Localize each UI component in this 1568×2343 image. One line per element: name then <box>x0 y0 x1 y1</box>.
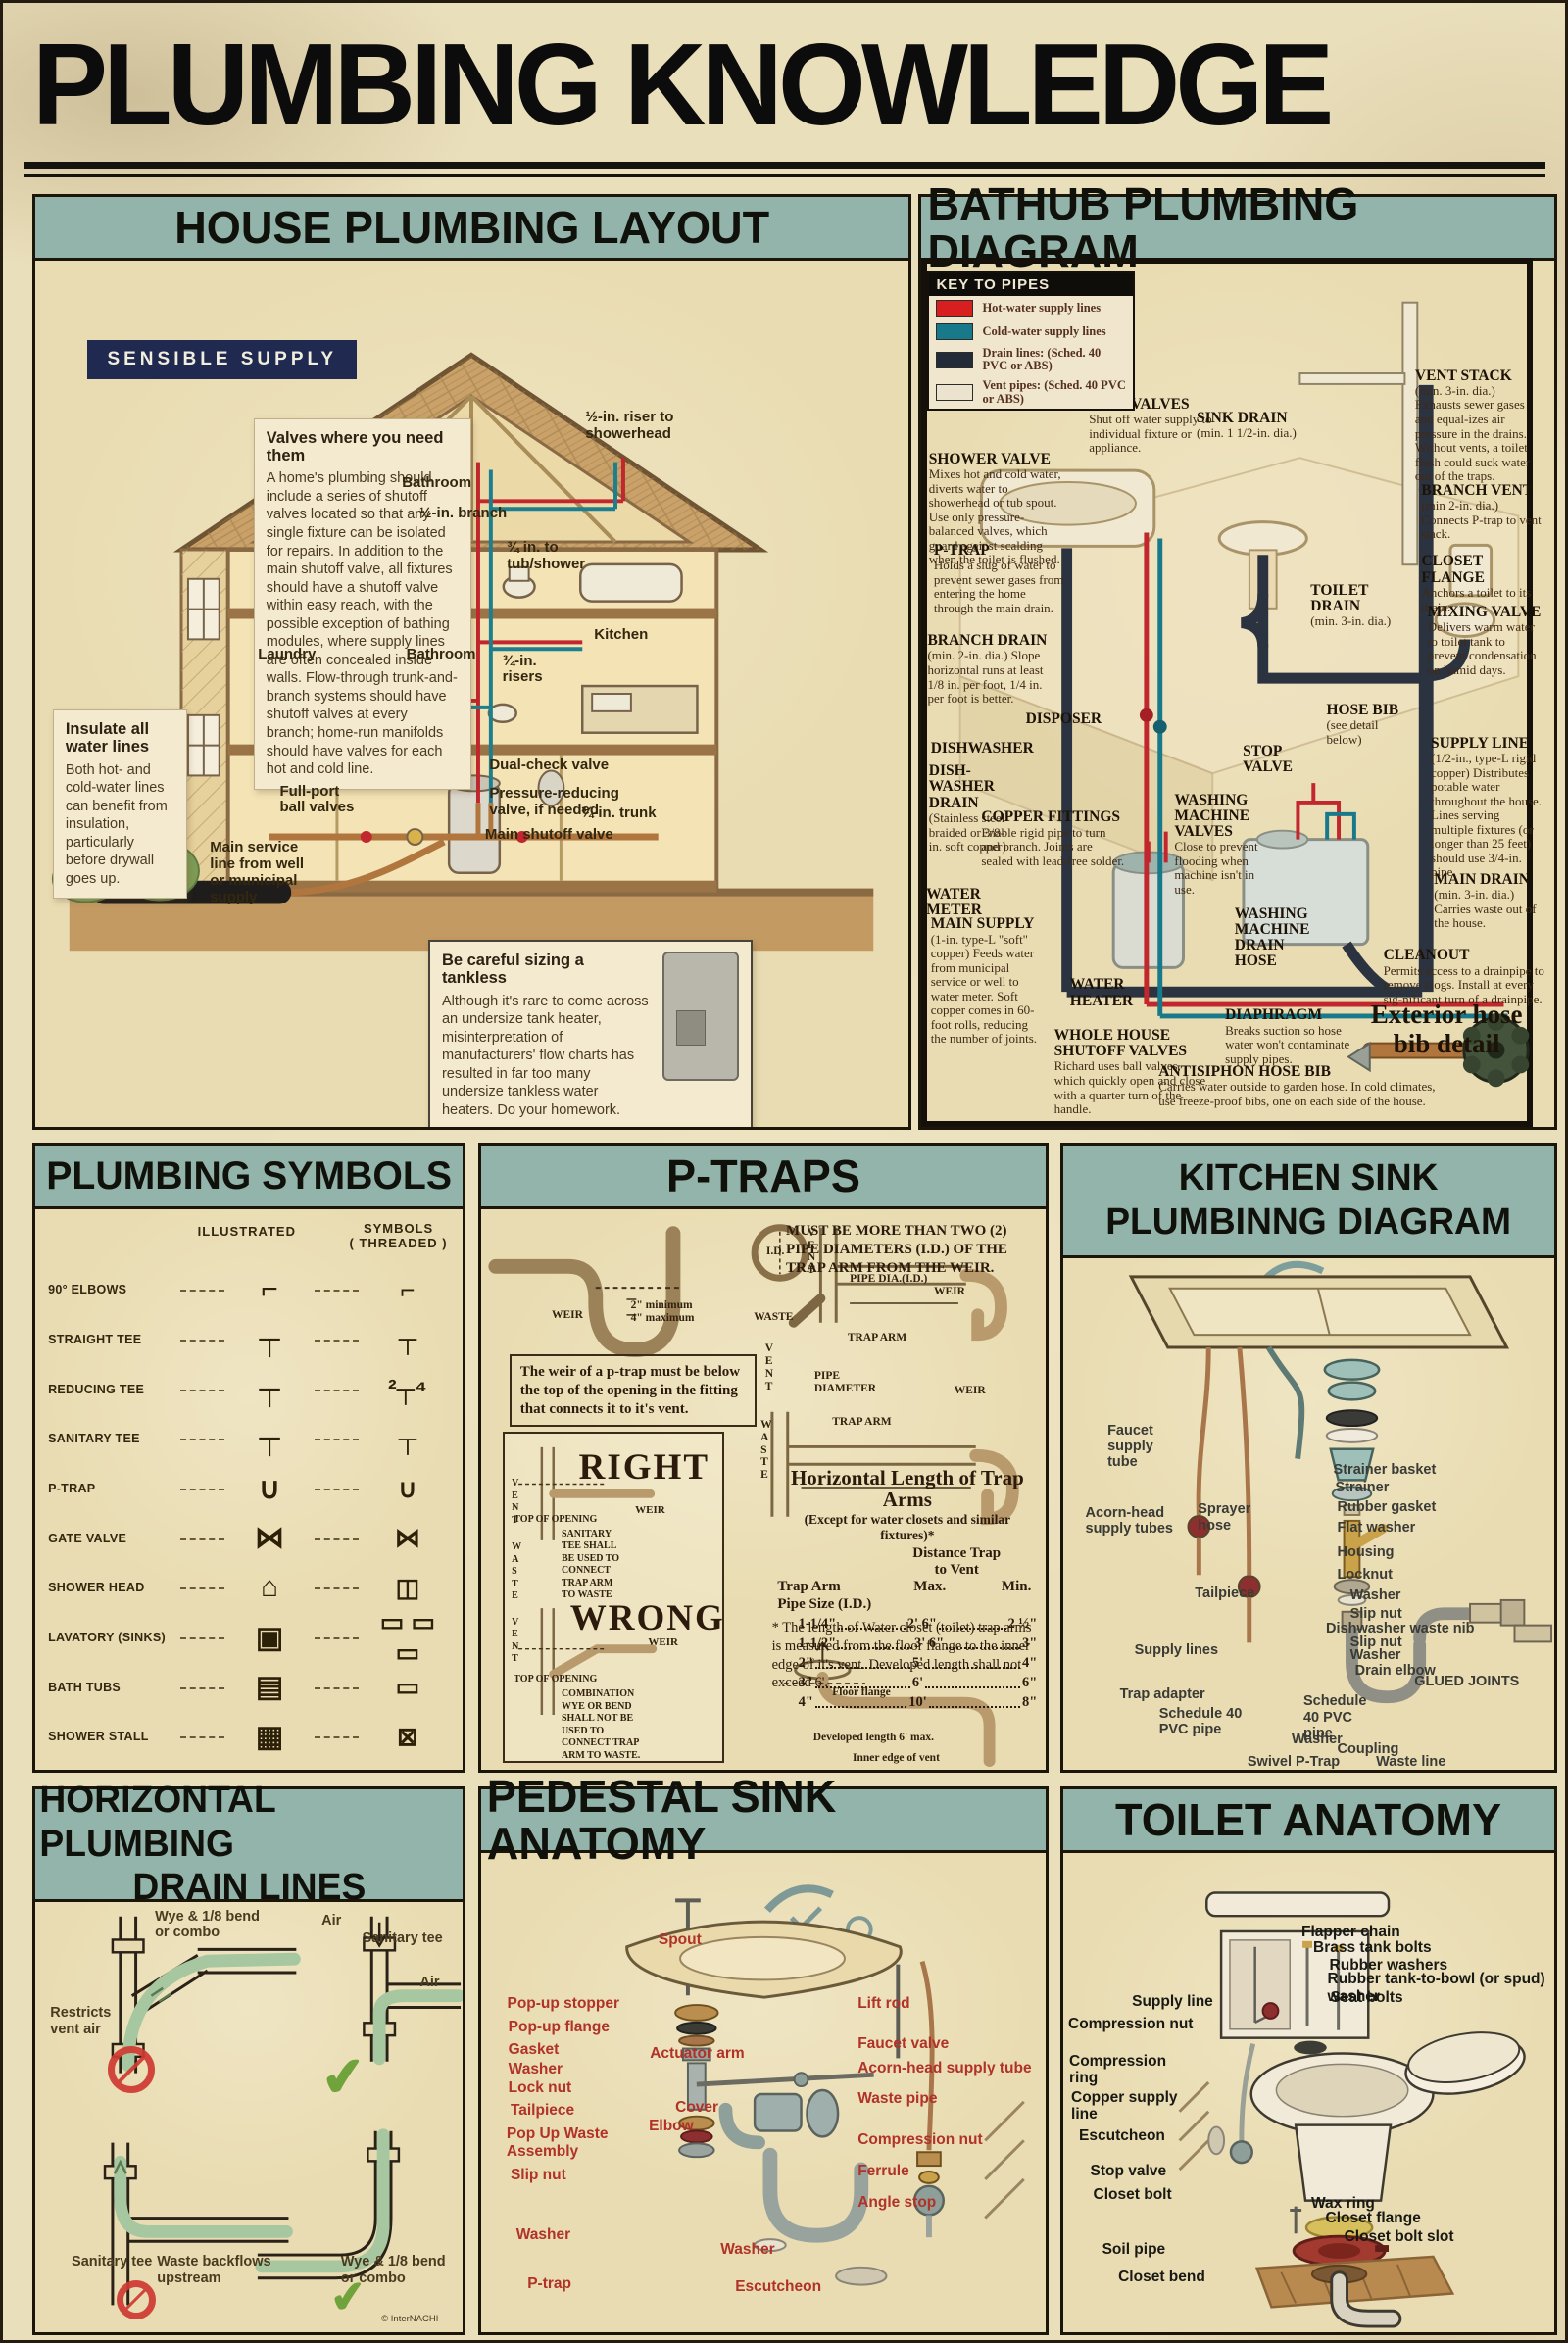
kitchen-diagram-label: Washer <box>1350 1647 1401 1663</box>
panel-symbols-header: PLUMBING SYMBOLS <box>35 1146 463 1209</box>
kitchen-diagram-label: Waste line <box>1376 1754 1445 1770</box>
pedestal-diagram-label: Acorn-head supply tube <box>857 2060 1031 2076</box>
toilet-diagram-label: Seat bolts <box>1331 1989 1403 2006</box>
ptrap-diagram-label: TRAP ARM <box>832 1416 891 1429</box>
bathtub-diagram-label: MAIN DRAIN (min. 3-in. dia.) Carries was… <box>1434 872 1542 931</box>
top-of-opening-label: TOP OF OPENING <box>514 1514 597 1527</box>
toilet-diagram-label: Compression nut <box>1068 2016 1193 2032</box>
ptrap-diagram-label: V E N T <box>808 1227 815 1278</box>
toilet-diagram-label: Supply line <box>1132 1993 1213 2010</box>
symbol-row: SANITARY TEE ┬ ┬ <box>48 1417 450 1460</box>
panel-drains-header: HORIZONTAL PLUMBING DRAIN LINES <box>35 1789 463 1902</box>
pedestal-diagram-label: Escutcheon <box>735 2278 821 2295</box>
key-legend-row: Cold-water supply lines <box>929 319 1133 343</box>
kitchen-diagram-label: Supply lines <box>1135 1642 1218 1658</box>
right-rule-text: SANITARY TEE SHALL BE USED TO CONNECT TR… <box>562 1529 640 1602</box>
kitchen-diagram-label: Tailpiece <box>1195 1586 1254 1601</box>
kitchen-diagram-label: Flat washer <box>1338 1520 1416 1536</box>
symbol-row: GATE VALVE ⋈ ⋈ <box>48 1517 450 1560</box>
toilet-diagram-label: Flapper chain <box>1301 1924 1400 1940</box>
dashed-leader <box>315 1734 359 1738</box>
insulate-note-heading: Insulate all water lines <box>66 720 174 756</box>
top-of-opening-label: TOP OF OPENING <box>514 1674 597 1686</box>
bathtub-diagram-label: SUPPLY LINE (1/2-in., type-L rigid coppe… <box>1431 736 1544 880</box>
kitchen-diagram-label: Faucet supply tube <box>1107 1423 1153 1471</box>
dashed-leader <box>180 1487 224 1490</box>
symbol-row: SHOWER STALL ▦ ⊠ <box>48 1715 450 1758</box>
bathtub-diagram-label: DISHWASHER <box>931 741 1032 757</box>
kitchen-diagram-label: Strainer <box>1336 1480 1390 1495</box>
panel-kitchen-title-line2: PLUMBINNG DIAGRAM <box>1106 1200 1512 1245</box>
insulate-note: Insulate all water lines Both hot- and c… <box>53 709 187 899</box>
panel-horizontal-drain-lines: HORIZONTAL PLUMBING DRAIN LINES <box>32 1786 465 2335</box>
pedestal-diagram-label: Pop-up stopper <box>507 1995 619 2012</box>
symbol-threaded-icon: ⌐ <box>366 1275 450 1305</box>
toilet-diagram-label: Brass tank bolts <box>1313 1939 1432 1956</box>
symbol-name: 90° ELBOWS <box>48 1283 173 1296</box>
pipe-color-label: Drain lines: (Sched. 40 PVC or ABS) <box>982 347 1126 372</box>
weir-label: WEIR <box>648 1636 678 1650</box>
symbol-threaded-icon: ▭ ▭ ▭ <box>366 1607 450 1668</box>
symbol-name: LAVATORY (SINKS) <box>48 1631 173 1644</box>
bathtub-diagram-label: BRANCH DRAIN (min. 2-in. dia.) Slope hor… <box>927 633 1048 706</box>
table-subtitle: (Except for water closets and similar fi… <box>777 1512 1037 1543</box>
ptrap-diagram-label: WEIR <box>934 1286 965 1298</box>
tankless-note: Be careful sizing a tankless Although it… <box>428 940 753 1127</box>
house-diagram-label: Bathroom <box>402 475 507 492</box>
house-diagram-label: ¾ in. to tub/shower <box>507 540 594 573</box>
symbol-row: 90° ELBOWS ⌐ ⌐ <box>48 1268 450 1311</box>
drain-diagram-label: Sanitary tee <box>72 2254 152 2270</box>
panel-bathtub-plumbing-diagram: BATHUB PLUMBING DIAGRAM <box>918 194 1557 1130</box>
toilet-diagram-label: Closet bend <box>1118 2269 1205 2285</box>
drain-diagram-label: Restricts vent air <box>50 2005 111 2036</box>
wrong-rule-text: COMBINATION WYE OR BEND SHALL NOT BE USE… <box>562 1688 648 1762</box>
bathtub-diagram-label: STOP VALVE <box>1243 744 1299 776</box>
sensible-supply-badge: SENSIBLE SUPPLY <box>87 340 357 379</box>
pedestal-diagram-label: Slip nut <box>511 2167 566 2183</box>
pedestal-diagram-label: Lift rod <box>857 1995 909 2012</box>
key-to-pipes-legend: KEY TO PIPES Hot-water supply lines Cold… <box>927 271 1135 411</box>
kitchen-diagram-label: Rubber gasket <box>1338 1499 1437 1515</box>
right-wrong-figure: RIGHT V E N T TOP OF OPENING WEIR SANITA… <box>503 1432 723 1763</box>
table-column-headers: Trap Arm Pipe Size (I.D.) Max. Min. <box>777 1579 1037 1613</box>
house-diagram-label: Kitchen <box>594 627 681 644</box>
key-legend-row: Vent pipes: (Sched. 40 PVC or ABS) <box>929 375 1133 408</box>
key-legend-row: Hot-water supply lines <box>929 296 1133 319</box>
tankless-heater-photo <box>662 952 739 1081</box>
pedestal-diagram-label: Angle stop <box>857 2194 936 2211</box>
pedestal-diagram-label: Compression nut <box>857 2131 982 2148</box>
bathtub-diagram-label: SINK DRAIN (min. 1 1/2-in. dia.) <box>1197 411 1310 441</box>
dashed-leader <box>180 1635 224 1639</box>
plumbing-knowledge-poster: PLUMBING KNOWLEDGE HOUSE PLUMBING LAYOUT <box>0 0 1568 2343</box>
symbol-illustrated-icon: ⌐ <box>231 1273 308 1306</box>
right-word: RIGHT <box>579 1446 710 1489</box>
symbol-illustrated-icon: ▣ <box>231 1621 308 1655</box>
two-diameters-note: MUST BE MORE THAN TWO (2) PIPE DIAMETERS… <box>786 1222 1040 1277</box>
bathtub-diagram-label: MAIN SUPPLY (1-in. type-L "soft" copper)… <box>931 916 1039 1047</box>
kitchen-diagram-label: Washer <box>1292 1732 1343 1747</box>
panel-symbols-title: PLUMBING SYMBOLS <box>46 1155 452 1196</box>
toilet-diagram: Flapper chain Brass tank bolts Rubber wa… <box>1063 1850 1554 2332</box>
symbol-illustrated-icon: ▤ <box>231 1670 308 1704</box>
bathtub-diagram-label: HOSE BIB (see detail below) <box>1326 703 1402 747</box>
weir-label: WEIR <box>635 1504 665 1518</box>
pedestal-diagram-label: Actuator arm <box>650 2045 744 2062</box>
check-icon: ✔ <box>328 2274 368 2321</box>
pipe-color-swatch <box>936 323 973 340</box>
dashed-leader <box>180 1338 224 1342</box>
panel-kitchen-sink-diagram: KITCHEN SINK PLUMBINNG DIAGRAM <box>1060 1143 1557 1773</box>
pedestal-diagram-label: Pop Up Waste Assembly <box>507 2125 609 2160</box>
toilet-diagram-label: Compression ring <box>1069 2053 1166 2087</box>
panel-kitchen-header: KITCHEN SINK PLUMBINNG DIAGRAM <box>1063 1146 1554 1258</box>
symbol-illustrated-icon: ⌂ <box>231 1571 308 1604</box>
drain-diagram-label: Air <box>419 1975 439 1990</box>
valves-note-heading: Valves where you need them <box>267 429 459 464</box>
bathtub-diagram-label: DISPOSER <box>1026 711 1102 727</box>
symbol-row: REDUCING TEE ┬ ²┬⁴ <box>48 1368 450 1411</box>
weir-rule-note: The weir of a p-trap must be below the t… <box>510 1354 757 1427</box>
toilet-diagram-label: Closet flange <box>1326 2210 1421 2226</box>
toilet-diagram-label: Copper supply line <box>1071 2089 1178 2123</box>
bathtub-diagram-label: COPPER FITTINGS Enable rigid pipe to tur… <box>981 809 1127 868</box>
dashed-leader <box>180 1537 224 1540</box>
symbol-threaded-icon: ┬ <box>366 1324 450 1354</box>
house-diagram-label: ¾-in. trunk <box>581 805 668 822</box>
panel-kitchen-title-line1: KITCHEN SINK <box>1179 1156 1439 1200</box>
ptrap-diagram-label: PIPE DIAMETER <box>814 1370 876 1395</box>
insulate-note-body: Both hot- and cold-water lines can benef… <box>66 762 168 887</box>
panel-house-plumbing-layout: HOUSE PLUMBING LAYOUT <box>32 194 911 1130</box>
pipe-color-swatch <box>936 352 973 368</box>
kitchen-diagram-label: Washer <box>1350 1587 1401 1603</box>
toilet-diagram-label: Stop valve <box>1091 2163 1167 2179</box>
symbol-threaded-icon: ◫ <box>366 1573 450 1603</box>
title-underline-thin <box>24 174 1545 177</box>
symbol-name: SANITARY TEE <box>48 1432 173 1445</box>
title-underline-thick <box>24 162 1545 169</box>
exterior-hose-bib-caption: Exterior hose bib detail <box>1364 1001 1529 1058</box>
ptrap-diagram-label: TRAP ARM <box>848 1332 906 1344</box>
dashed-leader <box>315 1338 359 1342</box>
symbol-threaded-icon: ⋈ <box>366 1523 450 1553</box>
panel-pedestal-header: PEDESTAL SINK ANATOMY <box>481 1789 1046 1853</box>
bathtub-diagram: KEY TO PIPES Hot-water supply lines Cold… <box>921 258 1554 1127</box>
dashed-leader <box>315 1685 359 1689</box>
dashed-leader <box>180 1288 224 1292</box>
pedestal-diagram-label: Washer <box>720 2241 774 2258</box>
table-distance-header: Distance Trap to Vent <box>881 1545 1032 1578</box>
panel-bathtub-header: BATHUB PLUMBING DIAGRAM <box>921 197 1554 261</box>
table-footnote: * The length of Water closet (toilet) tr… <box>772 1619 1038 1692</box>
tankless-note-body: Although it's rare to come across an und… <box>442 994 649 1118</box>
pedestal-diagram-label: Faucet valve <box>857 2035 949 2052</box>
check-icon: ✔ <box>318 2048 368 2105</box>
bathtub-diagram-label: WATER METER <box>926 887 1021 919</box>
symbols-chart: ILLUSTRATED SYMBOLS ( THREADED ) 90° ELB… <box>35 1206 463 1770</box>
ptrap-diagram-label: V E N T <box>765 1342 773 1393</box>
dashed-leader <box>315 1388 359 1391</box>
symbol-name: SHOWER HEAD <box>48 1581 173 1594</box>
ptrap-diagram-label: Developed length 6' max. <box>813 1732 934 1744</box>
pedestal-diagram-label: Waste pipe <box>857 2090 937 2107</box>
panel-ptraps-header: P-TRAPS <box>481 1146 1046 1209</box>
dashed-leader <box>315 1487 359 1490</box>
panel-house-title: HOUSE PLUMBING LAYOUT <box>174 204 769 251</box>
dashed-leader <box>180 1388 224 1391</box>
dashed-leader <box>315 1437 359 1440</box>
toilet-diagram-label: Soil pipe <box>1102 2241 1166 2258</box>
symbol-illustrated-icon: ⋈ <box>231 1521 308 1555</box>
house-diagram-label: Main shutoff valve <box>485 827 642 844</box>
key-legend-row: Drain lines: (Sched. 40 PVC or ABS) <box>929 343 1133 375</box>
panel-p-traps: P-TRAPS <box>478 1143 1049 1773</box>
ptrap-diagram-label: I.D. <box>766 1245 785 1258</box>
house-diagram-label: Dual-check valve <box>489 757 663 774</box>
symbol-name: STRAIGHT TEE <box>48 1333 173 1346</box>
bathtub-diagram-label: VENT STACK (min. 3-in. dia.) Exhausts se… <box>1415 368 1542 484</box>
symbol-threaded-icon: ▭ <box>366 1672 450 1702</box>
drain-diagram-label: Wye & 1/8 bend or combo <box>155 1909 260 1940</box>
pipe-color-swatch <box>936 384 973 401</box>
drain-diagram-label: Sanitary tee <box>363 1930 443 1946</box>
vent-vertical-label: V E N T <box>512 1617 518 1666</box>
house-diagram-label: ½-in. riser to showerhead <box>585 410 690 443</box>
wrong-word: WRONG <box>570 1597 725 1639</box>
table-title: Horizontal Length of Trap Arms <box>777 1467 1037 1510</box>
symbol-name: BATH TUBS <box>48 1681 173 1694</box>
prohibition-icon <box>117 2280 156 2319</box>
pedestal-diagram-label: Cover <box>675 2099 718 2116</box>
pipe-color-label: Hot-water supply lines <box>982 302 1101 315</box>
symbol-illustrated-icon: ┬ <box>231 1323 308 1356</box>
kitchen-diagram-label: Acorn-head supply tubes <box>1086 1505 1173 1537</box>
toilet-diagram-label: Escutcheon <box>1079 2127 1165 2144</box>
pedestal-diagram-label: Elbow <box>649 2118 694 2134</box>
ptrap-diagram-label: PIPE DIA.(I.D.) <box>850 1273 927 1286</box>
house-diagram-label: Main service line from well or municipal… <box>210 840 323 905</box>
house-diagram-label: Bathroom <box>407 647 503 663</box>
bathtub-diagram-label: MIXING VALVE Delivers warm water to toil… <box>1428 605 1542 677</box>
dashed-leader <box>315 1288 359 1292</box>
bathtub-diagram-label: WASHING MACHINE DRAIN HOSE <box>1235 906 1311 970</box>
kitchen-diagram-label: Housing <box>1338 1544 1395 1560</box>
symbol-row: LAVATORY (SINKS) ▣ ▭ ▭ ▭ <box>48 1616 450 1659</box>
symbol-illustrated-icon: ∪ <box>231 1472 308 1506</box>
dashed-leader <box>315 1635 359 1639</box>
pipe-color-swatch <box>936 300 973 317</box>
symbol-illustrated-icon: ┬ <box>231 1422 308 1455</box>
kitchen-sink-diagram: Faucet supply tube Acorn-head supply tub… <box>1063 1255 1554 1770</box>
ptrap-diagram-label: Inner edge of vent <box>853 1752 940 1765</box>
drain-lines-diagram: Wye & 1/8 bend or combo Air Sanitary tee… <box>35 1899 463 2332</box>
kitchen-diagram-label: Swivel P-Trap <box>1248 1754 1340 1770</box>
bathtub-diagram-label: DIAPHRAGM Breaks suction so hose water w… <box>1225 1007 1358 1066</box>
symbols-col-threaded: SYMBOLS ( THREADED ) <box>343 1221 454 1250</box>
symbol-row: STRAIGHT TEE ┬ ┬ <box>48 1318 450 1361</box>
tankless-note-heading: Be careful sizing a tankless <box>442 952 653 987</box>
symbol-row: BATH TUBS ▤ ▭ <box>48 1666 450 1709</box>
symbol-name: SHOWER STALL <box>48 1730 173 1743</box>
symbol-name: GATE VALVE <box>48 1532 173 1545</box>
house-diagram-label: ¾-in. risers <box>503 654 563 687</box>
bathtub-diagram-label: TOILET DRAIN (min. 3-in. dia.) <box>1310 583 1398 629</box>
bathtub-diagram-label: P-TRAP Holds a slug of water to prevent … <box>934 543 1067 615</box>
pedestal-diagram-label: Lock nut <box>509 2079 572 2096</box>
dashed-leader <box>315 1586 359 1589</box>
drain-diagram-label: Waste backflows upstream <box>157 2254 270 2285</box>
toilet-diagram-label: Closet bolt slot <box>1345 2228 1454 2245</box>
panel-pedestal-sink-anatomy: PEDESTAL SINK ANATOMY <box>478 1786 1049 2335</box>
pedestal-diagram-label: Spout <box>659 1931 702 1948</box>
dashed-leader <box>180 1586 224 1589</box>
dashed-leader <box>180 1437 224 1440</box>
pedestal-diagram-label: P-trap <box>527 2275 571 2292</box>
house-diagram-label: Laundry <box>258 647 345 663</box>
poster-title: PLUMBING KNOWLEDGE <box>32 24 1501 147</box>
symbol-threaded-icon: ┬ <box>366 1424 450 1454</box>
kitchen-diagram-label: Schedule 40 PVC pipe <box>1159 1706 1243 1737</box>
house-diagram: SENSIBLE SUPPLY Valves where you need th… <box>35 258 908 1127</box>
ptrap-diagram-label: 4" maximum <box>631 1312 695 1325</box>
toilet-diagram-label: Closet bolt <box>1094 2186 1172 2203</box>
ptrap-diagram-label: W A S T E <box>760 1419 772 1482</box>
pedestal-sink-diagram: Spout Pop-up stopper Pop-up flange Gaske… <box>481 1850 1046 2332</box>
ptraps-diagram: MUST BE MORE THAN TWO (2) PIPE DIAMETERS… <box>481 1206 1046 1770</box>
internachi-credit: © InterNACHI <box>381 2314 438 2324</box>
panel-toilet-anatomy: TOILET ANATOMY <box>1060 1786 1557 2335</box>
kitchen-diagram-label: Strainer basket <box>1334 1462 1437 1478</box>
dashed-leader <box>315 1537 359 1540</box>
pedestal-diagram-label: Washer <box>516 2226 570 2243</box>
ptrap-diagram-label: WEIR <box>552 1309 583 1322</box>
dashed-leader <box>180 1685 224 1689</box>
panel-drains-title-line1: HORIZONTAL PLUMBING <box>39 1779 458 1867</box>
bathtub-diagram-label: WATER HEATER <box>1070 977 1147 1009</box>
pedestal-diagram-label: Washer <box>509 2061 563 2077</box>
pedestal-diagram-label: Pop-up flange <box>509 2019 610 2035</box>
house-diagram-label: ½-in. branch <box>419 506 524 522</box>
kitchen-diagram-label: Trap adapter <box>1120 1686 1205 1702</box>
panel-toilet-title: TOILET ANATOMY <box>1115 1796 1501 1843</box>
panel-toilet-header: TOILET ANATOMY <box>1063 1789 1554 1853</box>
pedestal-diagram-label: Gasket <box>509 2041 560 2058</box>
kitchen-diagram-label: GLUED JOINTS <box>1414 1674 1519 1689</box>
table-row: 4" 10' 8" <box>777 1694 1037 1711</box>
ptrap-diagram-label: 2" minimum <box>631 1299 693 1312</box>
kitchen-diagram-label: Sprayer hose <box>1198 1501 1250 1533</box>
ptrap-diagram-label: WASTE <box>754 1311 793 1324</box>
key-to-pipes-title: KEY TO PIPES <box>929 273 1133 296</box>
symbol-illustrated-icon: ┬ <box>231 1373 308 1406</box>
pedestal-diagram-label: Tailpiece <box>511 2102 574 2119</box>
pipe-color-label: Cold-water supply lines <box>982 325 1105 338</box>
symbol-name: REDUCING TEE <box>48 1383 173 1396</box>
ptrap-diagram-label: WEIR <box>955 1385 986 1397</box>
panel-plumbing-symbols: PLUMBING SYMBOLS ILLUSTRATED SYMBOLS ( T… <box>32 1143 465 1773</box>
dashed-leader <box>180 1734 224 1738</box>
symbol-row: SHOWER HEAD ⌂ ◫ <box>48 1566 450 1609</box>
waste-vertical-label: W A S T E <box>512 1541 521 1603</box>
symbol-threaded-icon: ⊠ <box>366 1722 450 1752</box>
bathtub-diagram-label: BRANCH VENT (min 2-in. dia.) Connects P-… <box>1421 483 1542 542</box>
symbol-illustrated-icon: ▦ <box>231 1720 308 1754</box>
house-diagram-label: Full-port ball valves <box>279 784 367 817</box>
symbols-col-illustrated: ILLUSTRATED <box>198 1224 292 1239</box>
symbol-row: P-TRAP ∪ ∪ <box>48 1467 450 1510</box>
pedestal-diagram-label: Ferrule <box>857 2163 909 2179</box>
symbol-threaded-icon: ∪ <box>366 1474 450 1504</box>
pipe-color-label: Vent pipes: (Sched. 40 PVC or ABS) <box>982 379 1126 405</box>
panel-house-header: HOUSE PLUMBING LAYOUT <box>35 197 908 261</box>
panel-ptraps-title: P-TRAPS <box>666 1152 860 1199</box>
bathtub-diagram-label: ANTISIPHON HOSE BIB Carries water outsid… <box>1158 1064 1444 1108</box>
bathtub-diagram-label: CLEANOUT Permits access to a drainpipe t… <box>1384 948 1548 1006</box>
symbol-name: P-TRAP <box>48 1482 173 1495</box>
bathtub-diagram-label: WASHING MACHINE VALVES Close to prevent … <box>1174 793 1269 898</box>
kitchen-diagram-label: Locknut <box>1338 1567 1393 1583</box>
symbol-threaded-icon: ²┬⁴ <box>366 1374 450 1404</box>
drain-diagram-label: Air <box>321 1913 341 1928</box>
